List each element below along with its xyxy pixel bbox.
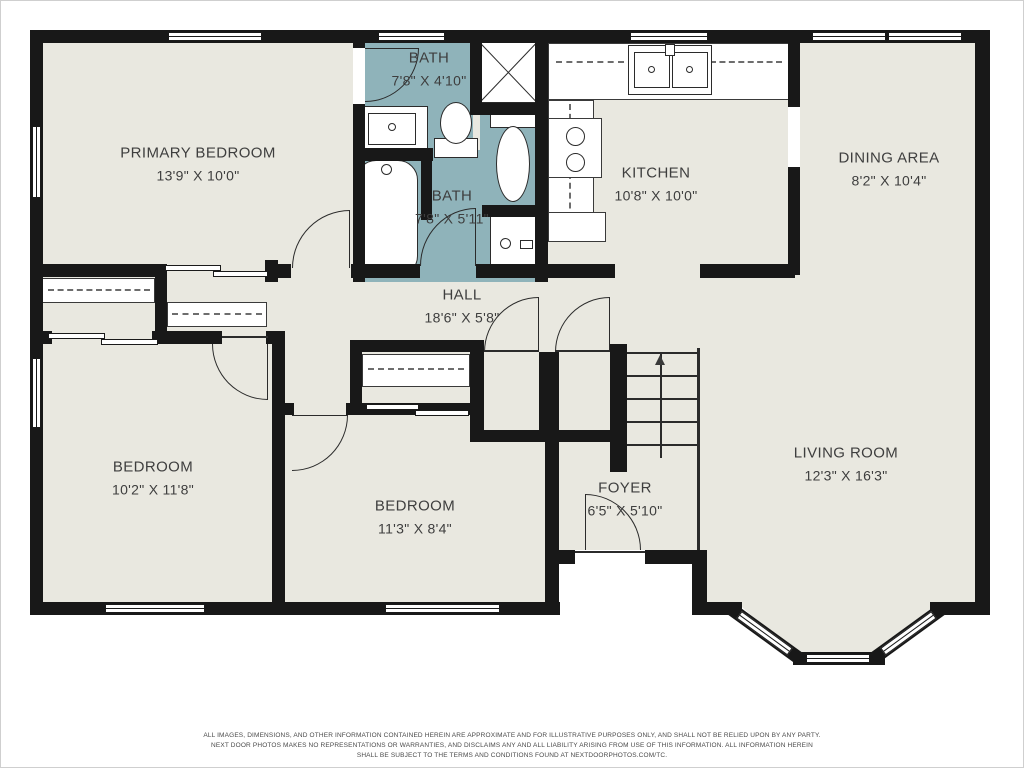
window <box>32 358 41 428</box>
wall-foyer-left <box>545 352 559 552</box>
wall-bath2-stub <box>482 205 535 217</box>
room-label-primary-bedroom: PRIMARY BEDROOM 13'9" X 10'0" <box>120 142 275 186</box>
room-name: KITCHEN <box>614 162 697 185</box>
room-label-bath2: BATH 7'8" X 5'11" <box>415 185 489 229</box>
window <box>385 604 500 613</box>
stair-tread <box>627 444 697 446</box>
bathtub <box>356 160 418 276</box>
upper-cabinet-line <box>556 61 624 63</box>
stair-railing <box>697 348 700 550</box>
sink-drain <box>686 66 693 73</box>
room-label-living-room: LIVING ROOM 12'3" X 16'3" <box>794 442 898 486</box>
tub-faucet <box>381 164 392 175</box>
toilet-bowl <box>496 126 530 202</box>
wall-shower-left <box>470 42 482 105</box>
wall-bedroom1-top <box>152 331 222 344</box>
window <box>630 32 708 41</box>
closet-rod <box>368 368 464 370</box>
doorway-bedroom1-sill <box>222 336 268 338</box>
closet-shelf <box>362 354 470 387</box>
room-dimensions: 10'2" X 11'8" <box>112 479 194 500</box>
window <box>812 32 886 41</box>
room-dimensions: 12'3" X 16'3" <box>794 465 898 486</box>
room-name: DINING AREA <box>838 147 939 170</box>
room-name: HALL <box>425 284 500 307</box>
wall-bedroom2-top <box>285 403 294 415</box>
vanity-handle <box>520 240 533 249</box>
room-label-hall: HALL 18'6" X 5'8" <box>425 284 500 328</box>
wall-bedroom1-top <box>266 331 285 344</box>
room-dimensions: 18'6" X 5'8" <box>425 307 500 328</box>
room-label-bedroom2: BEDROOM 11'3" X 8'4" <box>375 495 455 539</box>
stair-tread <box>627 398 697 400</box>
sliding-door-panel <box>213 271 268 277</box>
window <box>168 32 262 41</box>
refrigerator <box>548 212 606 242</box>
closet-rod <box>172 313 262 315</box>
wall-bedrooms-divider <box>272 344 285 602</box>
sink-faucet <box>665 44 675 56</box>
room-label-bath1: BATH 7'8" X 4'10" <box>392 47 467 91</box>
room-name: BEDROOM <box>375 495 455 518</box>
room-label-foyer: FOYER 6'5" X 5'10" <box>588 477 663 521</box>
room-dimensions: 8'2" X 10'4" <box>838 170 939 191</box>
stair-tread <box>627 421 697 423</box>
stair-tread <box>627 375 697 377</box>
sink-drain <box>388 123 396 131</box>
sliding-door-panel <box>415 410 469 416</box>
room-label-kitchen: KITCHEN 10'8" X 10'0" <box>614 162 697 206</box>
room-dimensions: 13'9" X 10'0" <box>120 165 275 186</box>
room-name: BEDROOM <box>112 456 194 479</box>
bay-window-center <box>806 654 870 663</box>
sliding-door-panel <box>101 339 158 345</box>
sink-drain <box>648 66 655 73</box>
room-name: FOYER <box>588 477 663 500</box>
disclaimer-line: SHALL BE SUBJECT TO THE TERMS AND CONDIT… <box>0 751 1024 761</box>
room-name: LIVING ROOM <box>794 442 898 465</box>
wall-stairs-left <box>610 344 627 472</box>
wall-primary-bottom <box>30 264 167 277</box>
vanity-sink-drain <box>500 238 511 249</box>
window <box>888 32 962 41</box>
front-door-sill <box>575 551 645 553</box>
room-dimensions: 6'5" X 5'10" <box>588 500 663 521</box>
wall-hall-closet-left <box>470 340 484 442</box>
wall-closet-top <box>350 340 482 352</box>
window <box>105 604 205 613</box>
doorway-bath2 <box>420 264 476 278</box>
room-name: BATH <box>415 185 489 208</box>
stair-center-line <box>660 352 662 458</box>
stove-burner <box>566 153 585 172</box>
stairs-up-arrow <box>655 355 665 365</box>
stove-burner <box>566 127 585 146</box>
disclaimer-line: NEXT DOOR PHOTOS MAKES NO REPRESENTATION… <box>0 741 1024 751</box>
room-dimensions: 10'8" X 10'0" <box>614 185 697 206</box>
toilet-bowl <box>440 102 472 144</box>
window <box>32 126 41 198</box>
sliding-door-panel <box>366 404 419 410</box>
room-dimensions: 7'8" X 4'10" <box>392 70 467 91</box>
wall-kitchen-bottom <box>700 264 795 278</box>
wall-bath-kitchen <box>535 42 548 282</box>
room-dimensions: 7'8" X 5'11" <box>415 208 489 229</box>
floor-plan-page: PRIMARY BEDROOM 13'9" X 10'0" BATH 7'8" … <box>0 0 1024 768</box>
wall-bedroom2-top <box>346 403 362 415</box>
room-name: PRIMARY BEDROOM <box>120 142 275 165</box>
doorway-bath1 <box>353 48 365 104</box>
window <box>378 32 445 41</box>
exterior-wall-left <box>30 30 43 615</box>
room-label-bedroom1: BEDROOM 10'2" X 11'8" <box>112 456 194 500</box>
upper-cabinet-line <box>710 61 782 63</box>
disclaimer-line: ALL IMAGES, DIMENSIONS, AND OTHER INFORM… <box>0 731 1024 741</box>
cased-opening-dining <box>788 105 800 169</box>
room-dimensions: 11'3" X 8'4" <box>375 518 455 539</box>
closet-rod <box>48 289 150 291</box>
disclaimer-text: ALL IMAGES, DIMENSIONS, AND OTHER INFORM… <box>0 731 1024 761</box>
room-name: BATH <box>392 47 467 70</box>
exterior-wall-right <box>975 30 990 615</box>
sliding-door-panel <box>48 333 105 339</box>
room-label-dining-area: DINING AREA 8'2" X 10'4" <box>838 147 939 191</box>
stair-tread <box>627 352 697 354</box>
